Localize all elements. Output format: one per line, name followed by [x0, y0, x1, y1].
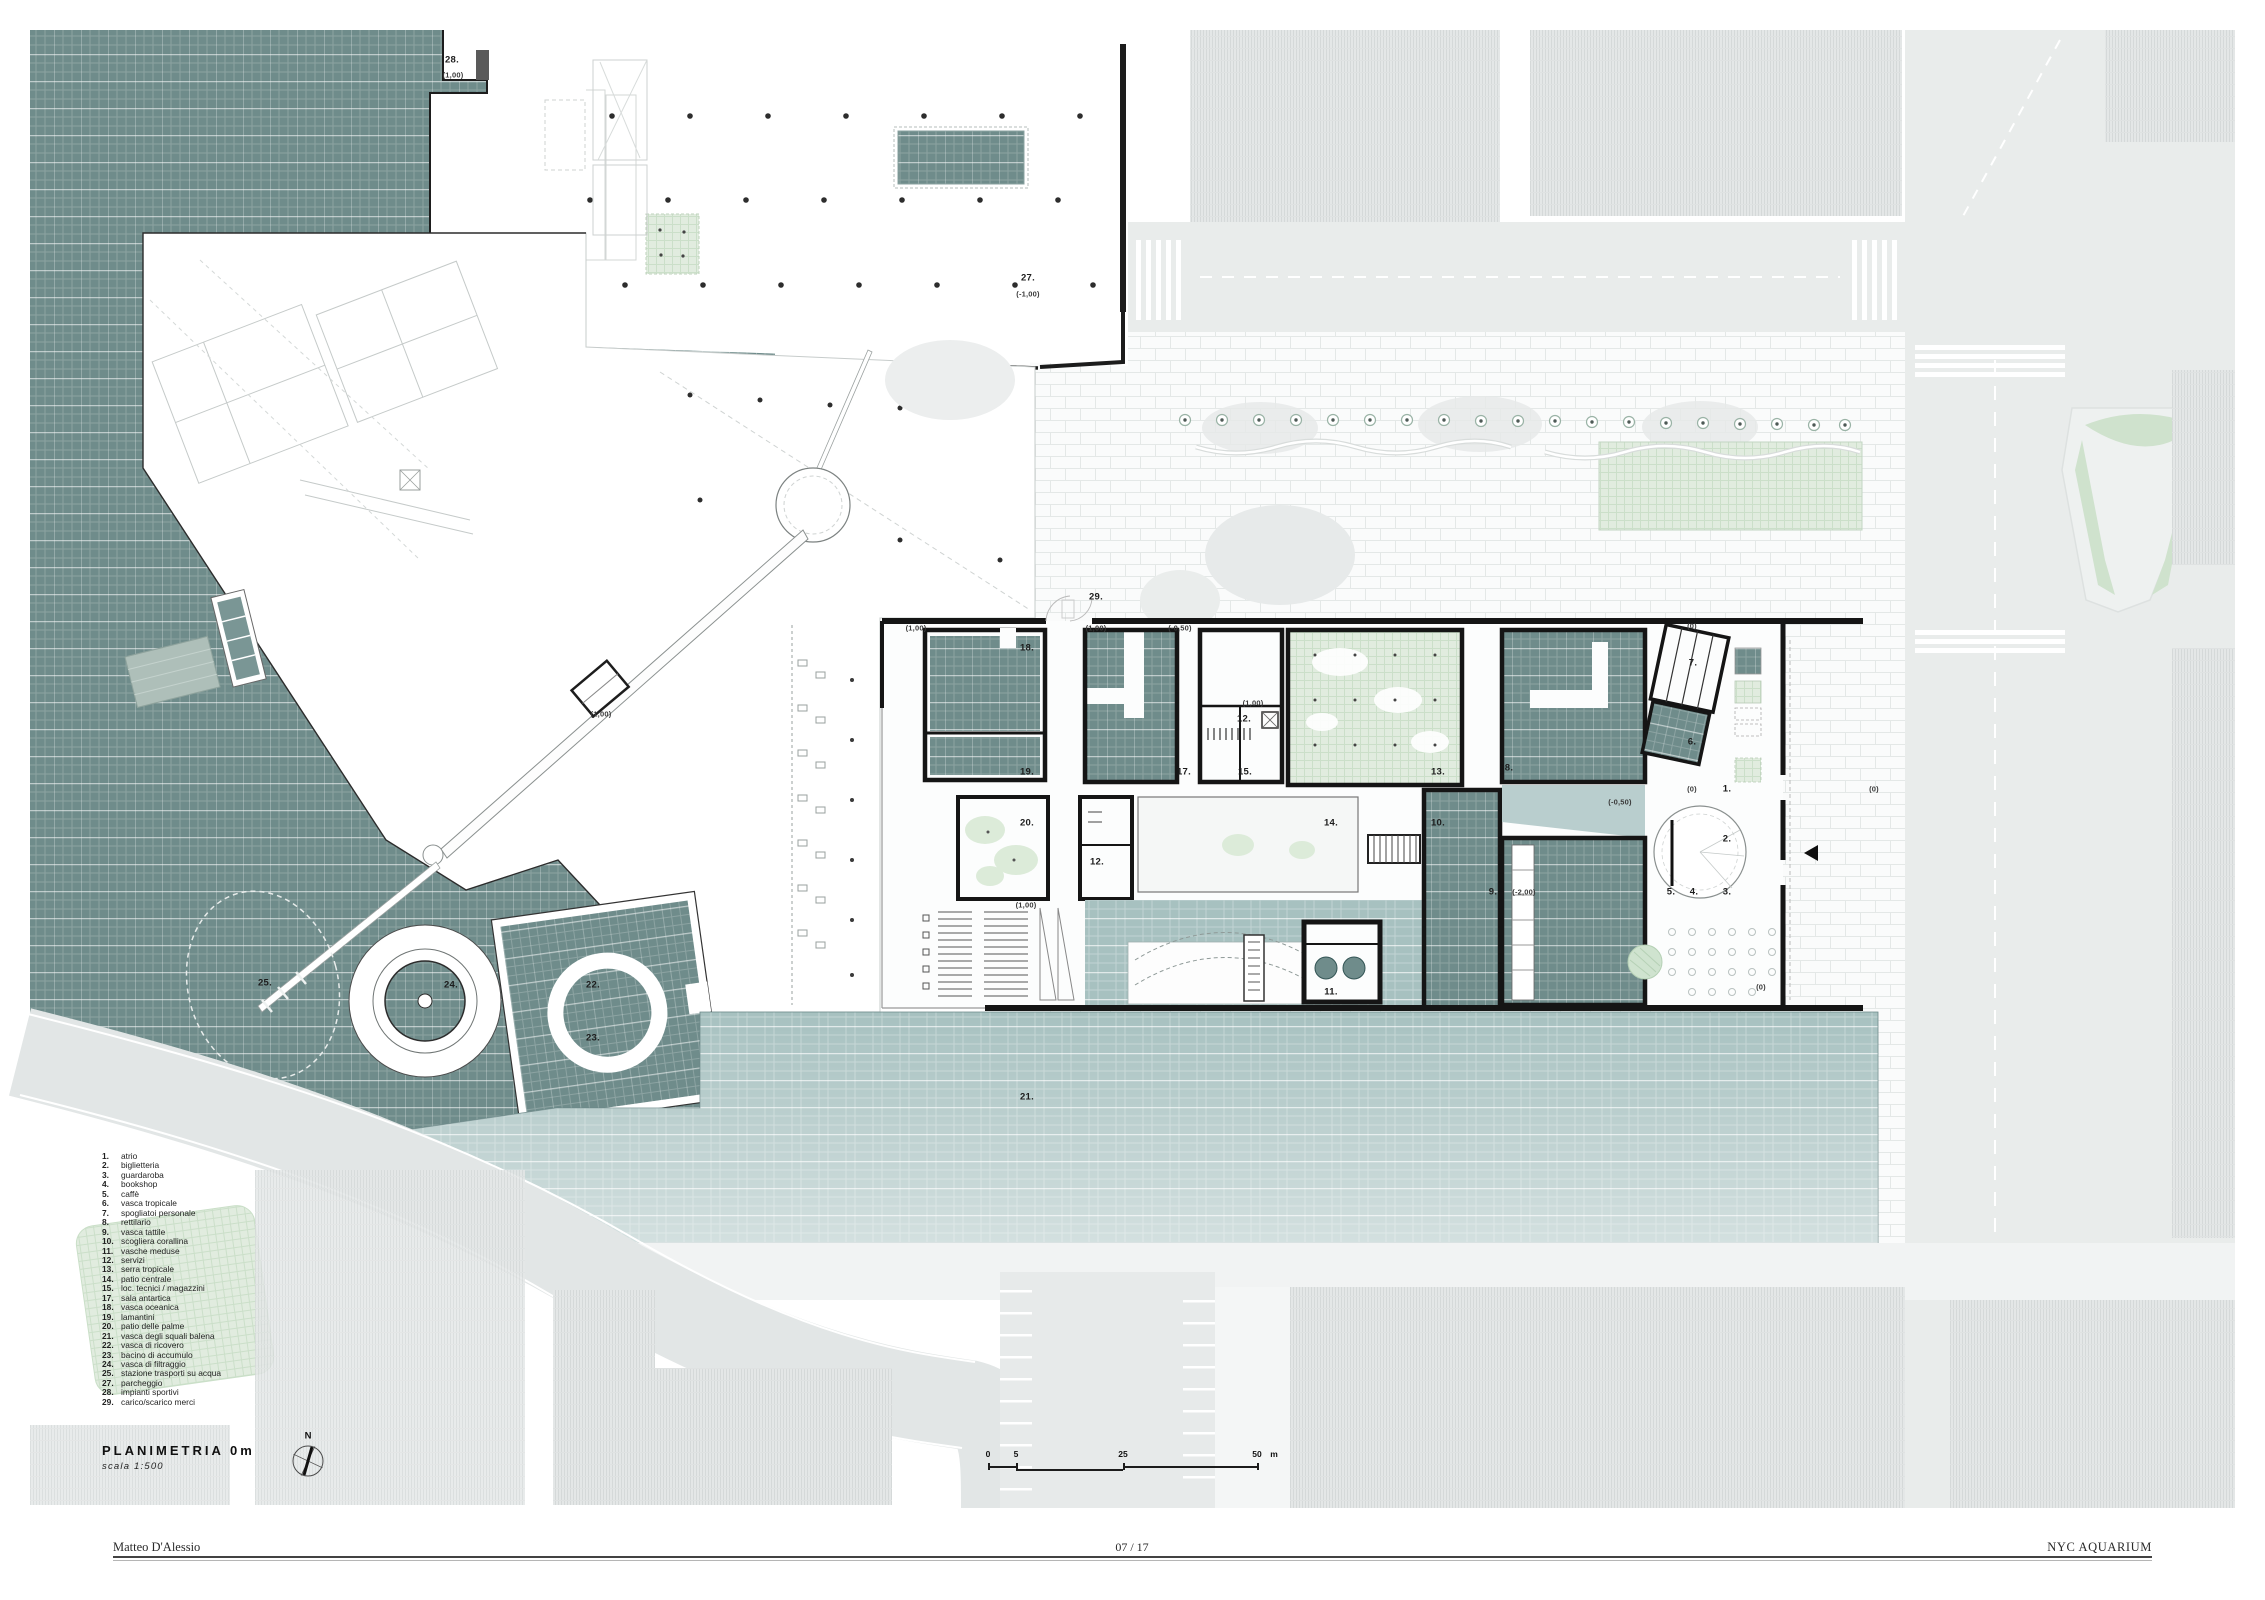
scale-bar-label: 5	[1014, 1449, 1019, 1459]
plan-label: 12.	[1237, 714, 1251, 725]
plan-label: 19.	[1020, 767, 1034, 778]
small-services	[1080, 797, 1132, 899]
plan-label: 25.	[258, 978, 272, 989]
drawing-title: PLANIMETRIA 0m	[102, 1443, 255, 1458]
plan-label: (1,00)	[906, 624, 927, 633]
plan-label: 15.	[1238, 767, 1252, 778]
footer-project: NYC AQUARIUM	[2047, 1540, 2152, 1555]
recovery-tank-block	[491, 891, 723, 1127]
plan-label: 1.	[1723, 784, 1732, 795]
plan-label: 13.	[1431, 767, 1445, 778]
drawing-scale: scala 1:500	[102, 1461, 164, 1472]
filtration-tank	[349, 925, 501, 1077]
plan-label: 18.	[1020, 643, 1034, 654]
plan-label: 3.	[1723, 887, 1732, 898]
plan-label: 17.	[1177, 767, 1191, 778]
plan-label: 29.	[1089, 592, 1103, 603]
aquarium-building	[882, 596, 1863, 1008]
plan-label: 14.	[1324, 818, 1338, 829]
footer-author: Matteo D'Alessio	[113, 1540, 200, 1555]
legend-item: 4. bookshop	[102, 1180, 221, 1189]
footer-page-number: 07 / 17	[1115, 1540, 1148, 1555]
plan-label: (1,00)	[443, 71, 464, 80]
legend-item: 18. vasca oceanica	[102, 1303, 221, 1312]
scale-bar-label: 25	[1118, 1449, 1127, 1459]
greenhouse	[1288, 630, 1462, 785]
plan-label: 9.	[1489, 887, 1498, 898]
plan-label: 10.	[1431, 818, 1445, 829]
plan-label: (0)	[1869, 785, 1879, 794]
plan-label: (-2,00)	[1512, 888, 1536, 897]
site-plan-sheet: 28. (1,00) 27. (-1,00) 29. (1,00) (1,00)…	[0, 0, 2265, 1600]
plan-label: 4.	[1690, 887, 1699, 898]
parking-planter	[646, 214, 699, 274]
plan-label: 24.	[444, 980, 458, 991]
dock-strip	[476, 50, 489, 80]
plan-label: 5.	[1667, 887, 1676, 898]
mid-tank	[1085, 630, 1177, 782]
plan-label: (0)	[1687, 785, 1697, 794]
jellyfish-room	[1304, 922, 1380, 1002]
legend-item-number: 29.	[102, 1398, 121, 1407]
plan-label: 28.	[445, 55, 459, 66]
palm-patio	[958, 797, 1048, 899]
plan-label: 22.	[586, 980, 600, 991]
plan-label: 7.	[1689, 658, 1698, 669]
plan-label: 27.	[1021, 273, 1035, 284]
rooftop-pool	[898, 131, 1024, 184]
scale-bar-label: 50	[1252, 1449, 1261, 1459]
footer-rule-thin	[113, 1560, 2152, 1561]
plan-label: 11.	[1324, 987, 1338, 998]
plan-label: (1,00)	[1016, 901, 1037, 910]
north-label: N	[305, 1431, 312, 1442]
plan-label: (-1,00)	[1016, 290, 1040, 299]
plan-label: (0)	[1687, 622, 1697, 631]
legend-item: 7. spogliatoi personale	[102, 1209, 221, 1218]
plan-label: 21.	[1020, 1092, 1034, 1103]
footer-rule	[113, 1556, 2152, 1558]
legend-item: 11. vasche meduse	[102, 1247, 221, 1256]
reptile-tank	[1502, 630, 1645, 782]
plan-label: (1,00)	[1086, 624, 1107, 633]
services-block	[1200, 630, 1282, 782]
central-patio	[1138, 797, 1358, 892]
plan-label: (1,00)	[591, 710, 612, 719]
plan-label: (0)	[1756, 983, 1766, 992]
plan-label: 23.	[586, 1033, 600, 1044]
legend-item-label: carico/scarico merci	[121, 1398, 195, 1407]
legend-item: 1. atrio	[102, 1152, 221, 1161]
site-plan-drawing	[0, 0, 2265, 1600]
stairs	[1368, 835, 1420, 863]
scale-bar-label: 0	[986, 1449, 991, 1459]
scale-bar-label: m	[1270, 1449, 1278, 1459]
plan-label: (1,00)	[1243, 699, 1264, 708]
plan-label: 2.	[1723, 834, 1732, 845]
legend-item: 29. carico/scarico merci	[102, 1398, 221, 1407]
tactile-tank	[1502, 838, 1645, 1005]
parking-area	[560, 30, 1128, 368]
plan-label: (-0,50)	[1608, 798, 1632, 807]
plan-label: 20.	[1020, 818, 1034, 829]
legend-item: 3. guardaroba	[102, 1171, 221, 1180]
plan-label: (-0,50)	[1168, 624, 1192, 633]
plan-label: 6.	[1688, 737, 1697, 748]
plan-label: 12.	[1090, 857, 1104, 868]
plan-label: 8.	[1505, 763, 1514, 774]
legend: 1. atrio 2. biglietteria 3. guardaroba 4…	[102, 1152, 221, 1407]
street-parking	[1000, 1272, 1215, 1508]
